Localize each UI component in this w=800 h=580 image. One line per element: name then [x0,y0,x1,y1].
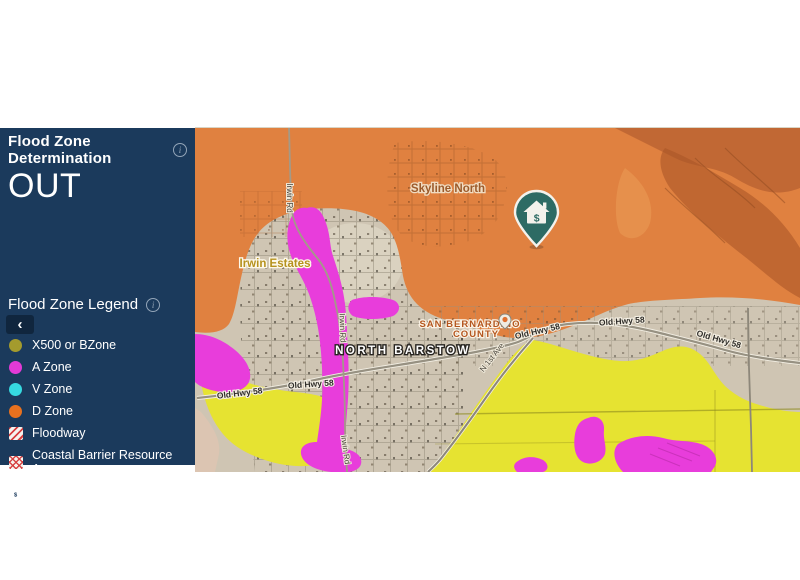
legend-info-icon[interactable]: i [146,298,160,312]
legend-collapse-button[interactable]: ‹ [6,315,34,334]
legend-item-coastal-barrier: Coastal Barrier Resource Area [8,448,187,476]
svg-text:$: $ [534,213,540,225]
v-zone-swatch [9,383,22,396]
determination-section: Flood Zone Determination i OUT [0,128,195,205]
legend-item-subject-property: $ Subject Property [8,484,187,499]
legend-section: Flood Zone Legend i ‹ X500 or BZone A Zo… [0,296,195,507]
d-zone-swatch [9,405,22,418]
legend-item-floodway: Floodway [8,426,187,440]
coastal-barrier-crosshatch-swatch [9,456,23,469]
legend-item-label: V Zone [32,382,72,396]
legend-item-label: Coastal Barrier Resource Area [32,448,187,476]
determination-value: OUT [8,169,187,205]
a-zone-swatch [9,361,22,374]
label-skyline-north: Skyline North [411,183,485,195]
label-irwin-estates: Irwin Estates [240,258,311,270]
legend-item-x500: X500 or BZone [8,338,187,352]
flood-zone-panel: Flood Zone Determination i OUT Flood Zon… [0,128,195,465]
page: Skyline North Irwin Estates SAN BERNARDI… [0,0,800,580]
determination-info-icon[interactable]: i [173,143,187,157]
label-irwin-rd: Irwin Rd [337,313,347,343]
legend-item-label: A Zone [32,360,72,374]
legend-item-label: D Zone [32,404,73,418]
label-county-line2: COUNTY [453,329,499,340]
legend-item-label: Subject Property [32,485,124,499]
x500-zone-swatch [9,339,22,352]
legend-item-v-zone: V Zone [8,382,187,396]
floodway-stripes-swatch [9,427,23,440]
legend-title: Flood Zone Legend [8,296,138,313]
subject-property-house-icon: $ [8,484,23,499]
flood-map[interactable]: Skyline North Irwin Estates SAN BERNARDI… [195,127,800,472]
label-irwin-rd: Irwin Rd [285,183,294,212]
map-canvas: Skyline North Irwin Estates SAN BERNARDI… [195,128,800,472]
legend-item-label: Floodway [32,426,86,440]
legend-item-a-zone: A Zone [8,360,187,374]
label-north-barstow: NORTH BARSTOW [335,345,471,357]
legend-item-label: X500 or BZone [32,338,116,352]
legend-item-d-zone: D Zone [8,404,187,418]
determination-title: Flood Zone Determination [8,133,167,167]
